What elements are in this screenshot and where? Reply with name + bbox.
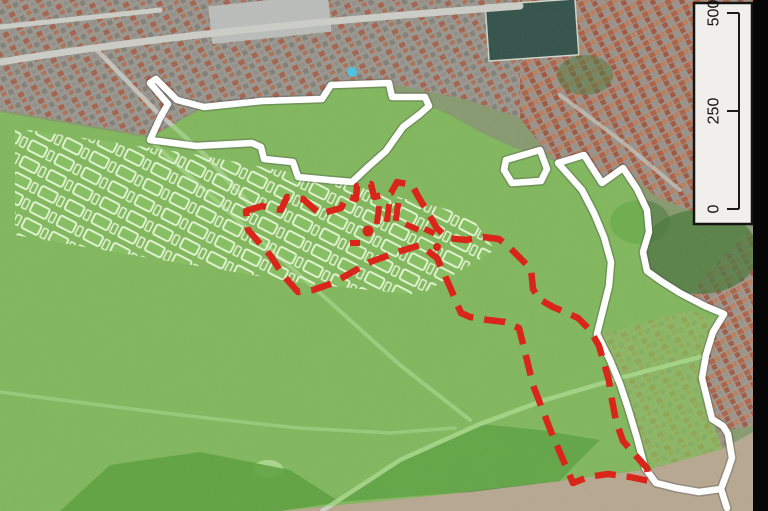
right-frame-strip	[753, 0, 768, 511]
scale-label-500: 500	[706, 0, 723, 26]
aerial-map-figure: 500 250 0	[0, 0, 768, 511]
scale-bar: 500 250 0	[694, 0, 752, 224]
scale-label-250: 250	[706, 98, 723, 125]
map-canvas: 500 250 0	[0, 0, 768, 511]
scale-label-0: 0	[706, 204, 723, 213]
scale-bar-box	[694, 3, 752, 224]
